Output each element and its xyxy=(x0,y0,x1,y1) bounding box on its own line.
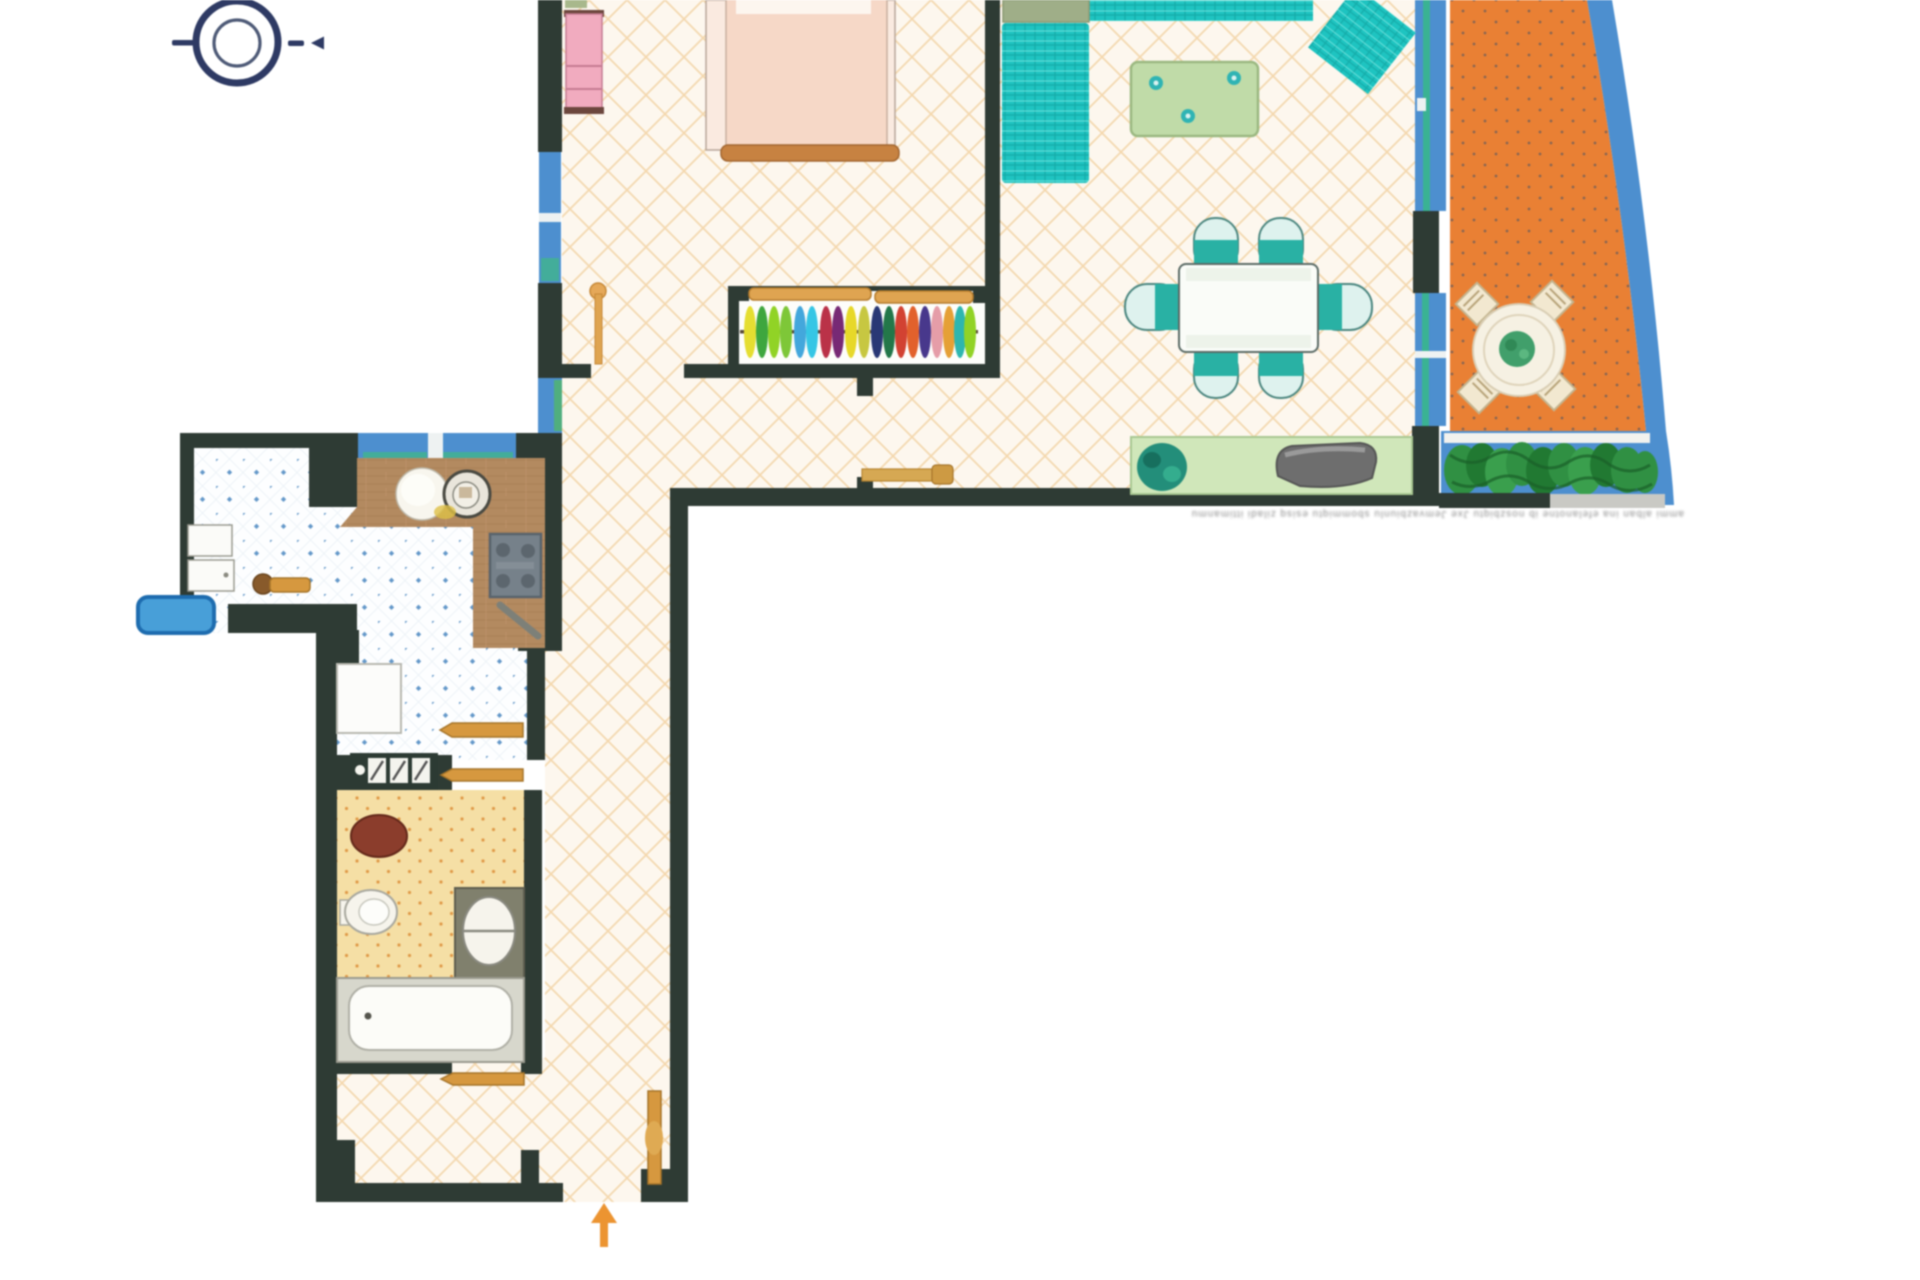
svg-text:ammi alban ina efelanotne ib n: ammi alban ina efelanotne ib noszbiqtu J… xyxy=(1191,508,1684,519)
